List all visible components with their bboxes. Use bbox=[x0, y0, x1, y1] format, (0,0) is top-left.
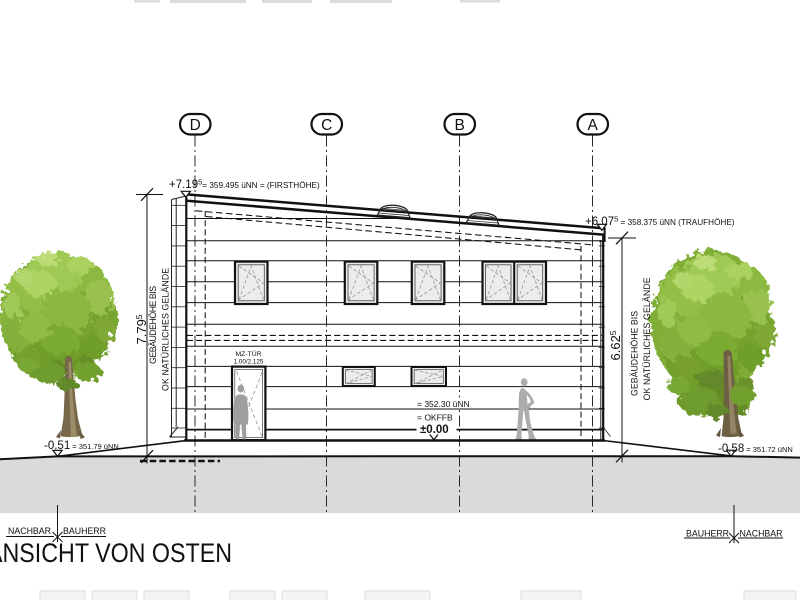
svg-text:D: D bbox=[190, 117, 201, 134]
svg-text:+6.075 = 358.375 üNN (TRAUFHÖH: +6.075 = 358.375 üNN (TRAUFHÖHE) bbox=[585, 215, 735, 229]
svg-text:-0.51 = 351.79 üNN: -0.51 = 351.79 üNN bbox=[44, 440, 119, 452]
svg-text:±0.00: ±0.00 bbox=[420, 424, 449, 436]
svg-text:ANSICHT VON OSTEN: ANSICHT VON OSTEN bbox=[0, 538, 232, 568]
svg-text:-0.58 = 351.72 üNN: -0.58 = 351.72 üNN bbox=[718, 443, 793, 455]
svg-text:BAUHERR: BAUHERR bbox=[63, 526, 106, 536]
svg-text:1.00/2.125: 1.00/2.125 bbox=[234, 359, 264, 366]
svg-text:OK NATÜRLICHES GELÄNDE: OK NATÜRLICHES GELÄNDE bbox=[161, 268, 171, 391]
svg-text:A: A bbox=[588, 117, 599, 134]
svg-text:BAUHERR: BAUHERR bbox=[686, 529, 729, 539]
svg-text:MZ-TÜR: MZ-TÜR bbox=[235, 350, 261, 358]
svg-text:GEBÄUDEHÖHE BIS: GEBÄUDEHÖHE BIS bbox=[148, 286, 158, 364]
svg-text:NACHBAR: NACHBAR bbox=[740, 529, 783, 539]
svg-text:= 352.30 üNN: = 352.30 üNN bbox=[417, 399, 470, 409]
svg-text:GEBÄUDEHÖHE BIS: GEBÄUDEHÖHE BIS bbox=[630, 311, 640, 396]
svg-text:OK NATÜRLICHES GELÄNDE: OK NATÜRLICHES GELÄNDE bbox=[642, 277, 652, 400]
svg-text:+7.195= 359.495 üNN = (FIRSTHÖ: +7.195= 359.495 üNN = (FIRSTHÖHE) bbox=[169, 178, 320, 192]
svg-text:C: C bbox=[321, 117, 332, 134]
svg-text:B: B bbox=[455, 117, 465, 134]
svg-text:NACHBAR: NACHBAR bbox=[8, 526, 51, 536]
svg-text:6.625: 6.625 bbox=[608, 330, 623, 360]
svg-text:= OKFFB: = OKFFB bbox=[417, 413, 453, 423]
